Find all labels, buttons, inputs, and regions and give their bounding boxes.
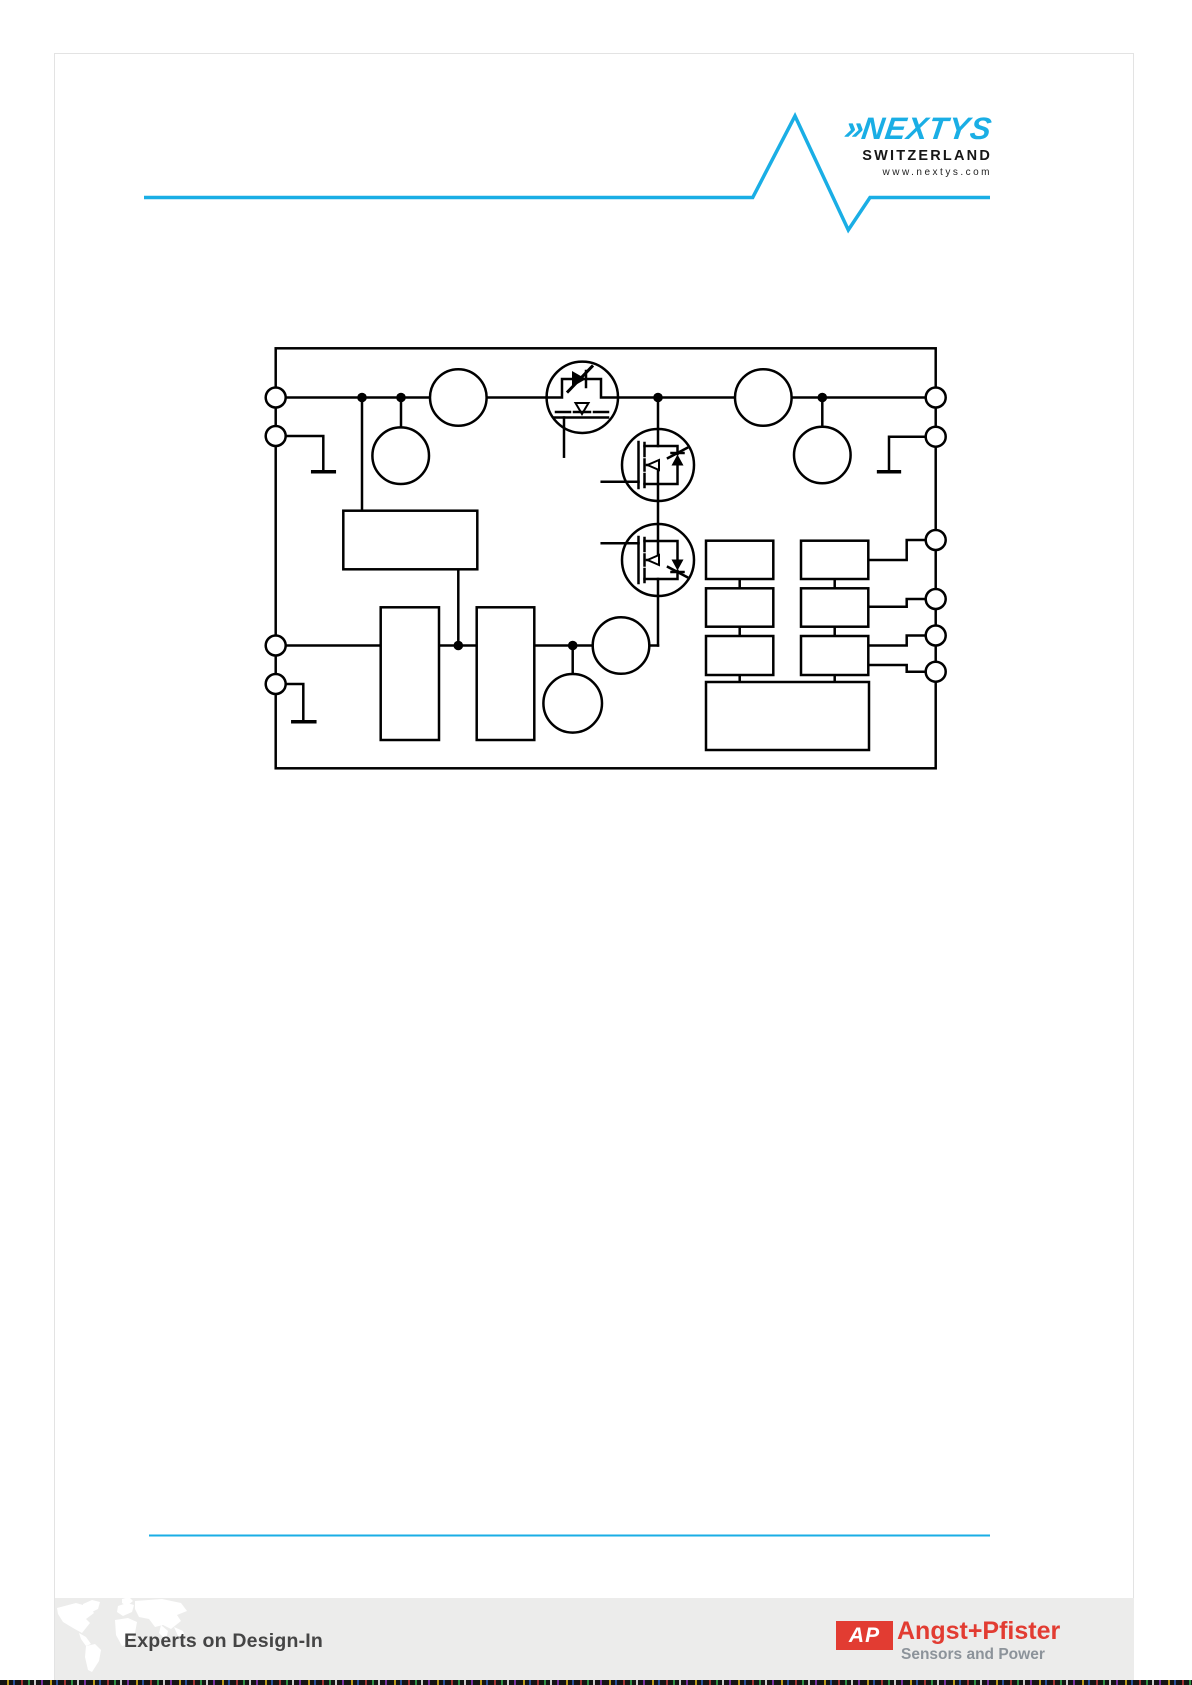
partner-logo-name: Angst+Pfister	[897, 1617, 1060, 1646]
page-sheet	[54, 53, 1134, 1682]
brand-wordmark: »NEXTYS	[842, 110, 994, 147]
partner-logo-subtitle: Sensors and Power	[901, 1646, 1045, 1664]
print-color-strip	[0, 1680, 1192, 1685]
map-asia	[135, 1599, 187, 1629]
map-south-america	[85, 1644, 101, 1672]
map-north-america	[57, 1603, 94, 1633]
partner-logo-monogram: AP	[836, 1621, 893, 1650]
brand-block: »NEXTYS SWITZERLAND www.nextys.com	[845, 110, 992, 178]
brand-website: www.nextys.com	[845, 167, 992, 178]
footer-tagline: Experts on Design-In	[124, 1630, 323, 1653]
brand-country: SWITZERLAND	[845, 148, 992, 164]
map-central-america	[79, 1633, 91, 1646]
brand-name: NEXTYS	[860, 111, 995, 146]
